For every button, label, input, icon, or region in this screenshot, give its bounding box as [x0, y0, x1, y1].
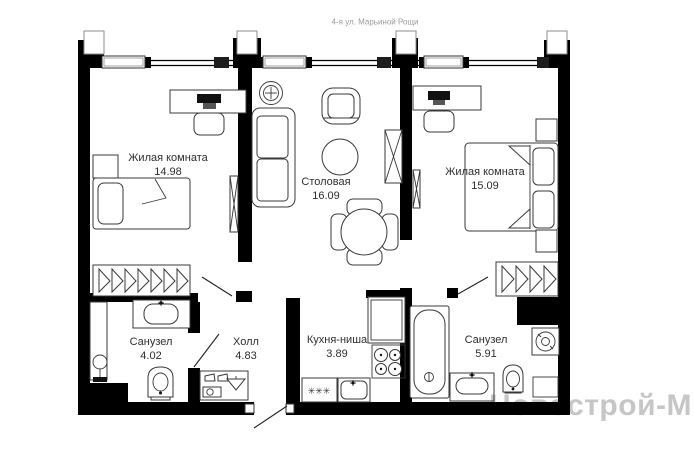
room-area: 5.91	[465, 347, 508, 361]
kitchen-sink-icon	[338, 378, 370, 402]
room-area: 3.89	[307, 347, 367, 361]
lamp-symbol-icon	[260, 82, 283, 105]
room-label-living-2: Жилая комната 15.09	[445, 165, 524, 193]
vent-shaft-icon	[537, 57, 549, 68]
room-name: Санузел	[130, 335, 173, 349]
floor-plan: 4-я ул. Марьиной Рощи	[0, 0, 695, 450]
entrance-door-frame	[245, 404, 254, 413]
room-name: Жилая комната	[445, 165, 524, 179]
door-swing-living-2	[458, 277, 488, 294]
room-label-bathroom-2: Санузел 5.91	[465, 333, 508, 361]
window-icon	[97, 56, 151, 68]
nightstand-icon	[536, 119, 557, 141]
single-bed-icon	[93, 178, 190, 229]
column-cap	[396, 31, 416, 54]
sink-icon	[133, 300, 190, 328]
wardrobe-icon	[93, 265, 190, 296]
door-swing-bathroom-1	[194, 334, 219, 367]
dining-table-icon	[331, 199, 398, 265]
fridge-icon	[368, 297, 405, 343]
room-area: 4.83	[233, 349, 259, 363]
toilet-icon	[148, 367, 173, 400]
washing-machine-icon	[532, 328, 559, 355]
room-area: 14.98	[128, 165, 207, 179]
room-name: Столовая	[301, 175, 350, 189]
coffee-table-icon	[322, 139, 358, 175]
room-area: 16.09	[301, 189, 350, 203]
tv-cabinet-icon	[385, 130, 402, 183]
facade	[84, 31, 567, 68]
window-icon	[419, 56, 469, 68]
sink-icon	[450, 372, 494, 401]
room-label-hall: Холл 4.83	[233, 335, 259, 363]
room-label-dining: Столовая 16.09	[301, 175, 350, 203]
entrance-door-swing	[254, 406, 287, 428]
desk-icon	[170, 90, 246, 135]
room-name: Санузел	[465, 333, 508, 347]
armchair-icon	[322, 88, 360, 124]
room-dining-furniture	[252, 82, 402, 266]
wardrobe-icon	[496, 262, 558, 296]
vent-shaft-icon	[377, 57, 391, 68]
address-label: 4-я ул. Марьиной Рощи	[332, 18, 419, 27]
watermark: Новострой-М	[489, 389, 692, 423]
bathtub-icon	[410, 306, 449, 398]
room-name: Кухня-ниша	[307, 333, 367, 347]
window-icon	[258, 56, 312, 68]
room-area: 15.09	[445, 179, 524, 193]
column-cap	[547, 31, 567, 54]
room-label-living-1: Жилая комната 14.98	[128, 151, 207, 179]
floor-plan-drawing: ✳✳✳	[0, 0, 695, 450]
room-name: Холл	[233, 335, 259, 349]
door-swing-living-1	[202, 277, 232, 296]
hall-unit-icon	[200, 371, 248, 400]
room-label-bathroom-1: Санузел 4.02	[130, 335, 173, 363]
freezer-symbol: ✳✳✳	[308, 386, 331, 396]
desk-icon	[413, 86, 481, 132]
sofa-icon	[252, 108, 295, 207]
room-living-1-furniture	[93, 90, 246, 296]
room-name: Жилая комната	[128, 151, 207, 165]
nightstand-icon	[93, 155, 118, 178]
kitchen-cabinet-icon: ✳✳✳	[302, 378, 337, 402]
room-area: 4.02	[130, 349, 173, 363]
entrance-door-frame	[286, 404, 294, 413]
shower-icon	[90, 302, 107, 382]
room-label-kitchen: Кухня-ниша 3.89	[307, 333, 367, 361]
column-cap	[84, 31, 104, 54]
vent-shaft-icon	[214, 57, 229, 68]
tv-icon	[413, 170, 420, 208]
nightstand-icon	[536, 230, 557, 252]
column-cap	[237, 31, 257, 54]
tv-icon	[230, 176, 238, 232]
